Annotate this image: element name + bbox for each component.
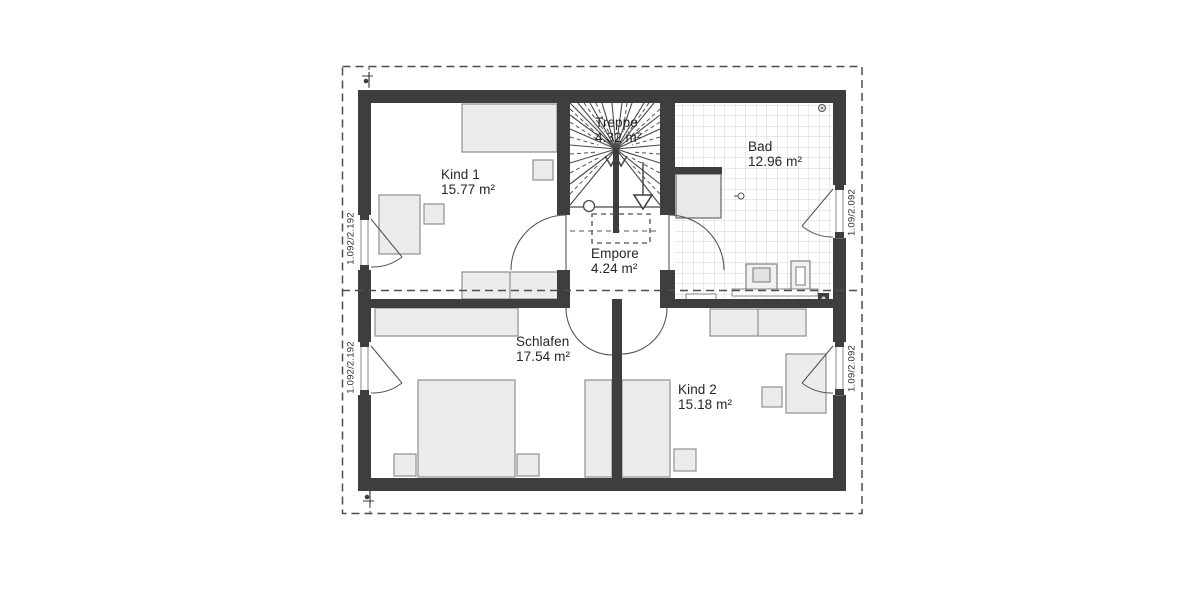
room-name: Treppe [595, 115, 641, 130]
section-marker-bottom-icon [363, 491, 374, 514]
room-area: 4.24 m² [591, 261, 639, 276]
wall-schlafen-kind2 [612, 299, 622, 478]
wall-treppe-bad-upper [660, 103, 675, 215]
kind2-chair [762, 387, 782, 407]
floor-plan-drawing [0, 0, 1200, 600]
door-schlafen [566, 308, 613, 355]
room-name: Kind 1 [441, 167, 495, 182]
wall-kind1-treppe-upper [557, 103, 570, 215]
kind1-bed [379, 195, 420, 254]
window-dimension-label-kind2: 1.09/2.092 [847, 334, 858, 404]
room-area: 15.77 m² [441, 182, 495, 197]
valve-symbol-icon [738, 193, 744, 199]
wall-shower-stub [675, 167, 722, 174]
room-label-treppe: Treppe 4.32 m² [595, 115, 641, 145]
window-schlafen [356, 341, 402, 396]
room-area: 4.32 m² [595, 130, 641, 145]
room-label-kind1: Kind 1 15.77 m² [441, 167, 495, 197]
room-area: 12.96 m² [748, 154, 802, 169]
empore-opening-dashed [592, 214, 650, 243]
room-label-empore: Empore 4.24 m² [591, 246, 639, 276]
kind1-nightstand [424, 204, 444, 224]
schlafen-nightstand-left [394, 454, 416, 476]
toilet-bowl [753, 268, 770, 282]
room-name: Empore [591, 246, 639, 261]
room-label-schlafen: Schlafen 17.54 m² [516, 334, 570, 364]
room-name: Schlafen [516, 334, 570, 349]
room-area: 17.54 m² [516, 349, 570, 364]
kind2-desk [786, 354, 826, 413]
wall-middle-right [667, 299, 846, 308]
door-kind2 [621, 308, 667, 354]
kind2-bed [622, 380, 670, 477]
schlafen-wardrobe [375, 308, 518, 336]
room-name: Kind 2 [678, 382, 732, 397]
room-label-kind2: Kind 2 15.18 m² [678, 382, 732, 412]
shower [676, 174, 721, 218]
room-area: 15.18 m² [678, 397, 732, 412]
ceiling-symbol-dot [821, 107, 823, 109]
schlafen-nightstand-right [517, 454, 539, 476]
kind2-nightstand [674, 449, 696, 471]
window-dimension-label-bad: 1.09/2.092 [847, 178, 858, 248]
window-dimension-label-schlafen: 1.092/2.192 [346, 333, 357, 403]
schlafen-side-bed [585, 380, 612, 477]
stair-start-circle [584, 201, 595, 212]
window-dimension-label-kind1: 1.092/2.192 [346, 204, 357, 274]
section-marker-top-icon [362, 67, 373, 90]
door-kind1 [511, 215, 566, 270]
schlafen-bed [418, 380, 515, 477]
kind1-desk [462, 104, 557, 152]
kind1-side-table [533, 160, 553, 180]
wall-middle-left [358, 299, 565, 308]
room-name: Bad [748, 139, 802, 154]
room-label-bad: Bad 12.96 m² [748, 139, 802, 169]
bidet-bowl [796, 267, 805, 285]
floor-plan-canvas: Kind 1 15.77 m² Treppe 4.32 m² Bad 12.96… [0, 0, 1200, 600]
